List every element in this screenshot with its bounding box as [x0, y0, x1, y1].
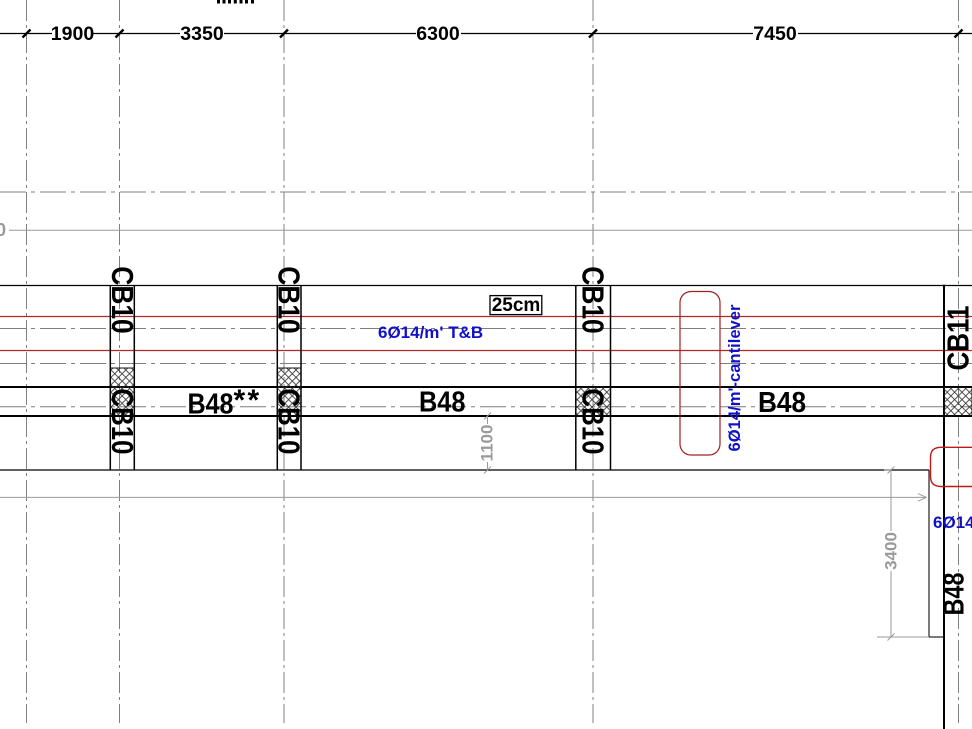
- svg-text:7450: 7450: [753, 23, 797, 45]
- svg-text:CB10: CB10: [105, 389, 140, 455]
- svg-text:CB10: CB10: [272, 389, 307, 455]
- svg-text:6300: 6300: [416, 23, 460, 45]
- svg-text:B48: B48: [188, 389, 234, 421]
- svg-text:CB10: CB10: [272, 266, 307, 334]
- svg-text:0: 0: [0, 220, 6, 240]
- svg-text:*: *: [234, 384, 246, 417]
- svg-text:CB10: CB10: [105, 266, 140, 334]
- svg-text:CB10: CB10: [576, 266, 611, 334]
- svg-text:25cm: 25cm: [492, 295, 541, 316]
- svg-text:CB10: CB10: [576, 389, 611, 455]
- svg-text:CB11: CB11: [941, 306, 972, 371]
- svg-text:1100: 1100: [478, 425, 497, 462]
- svg-text:*: *: [248, 384, 260, 417]
- svg-text:B48: B48: [758, 387, 806, 419]
- svg-text:B48: B48: [419, 387, 466, 419]
- svg-text:3350: 3350: [180, 23, 224, 45]
- svg-text:6Ø14/m' T&B: 6Ø14/m' T&B: [378, 323, 483, 342]
- svg-text:6Ø14: 6Ø14: [933, 513, 972, 532]
- svg-text:1900: 1900: [51, 23, 95, 45]
- svg-text:3400: 3400: [882, 532, 901, 570]
- svg-text:6Ø14/m'-cantilever: 6Ø14/m'-cantilever: [726, 304, 744, 452]
- svg-text:B48: B48: [939, 573, 971, 616]
